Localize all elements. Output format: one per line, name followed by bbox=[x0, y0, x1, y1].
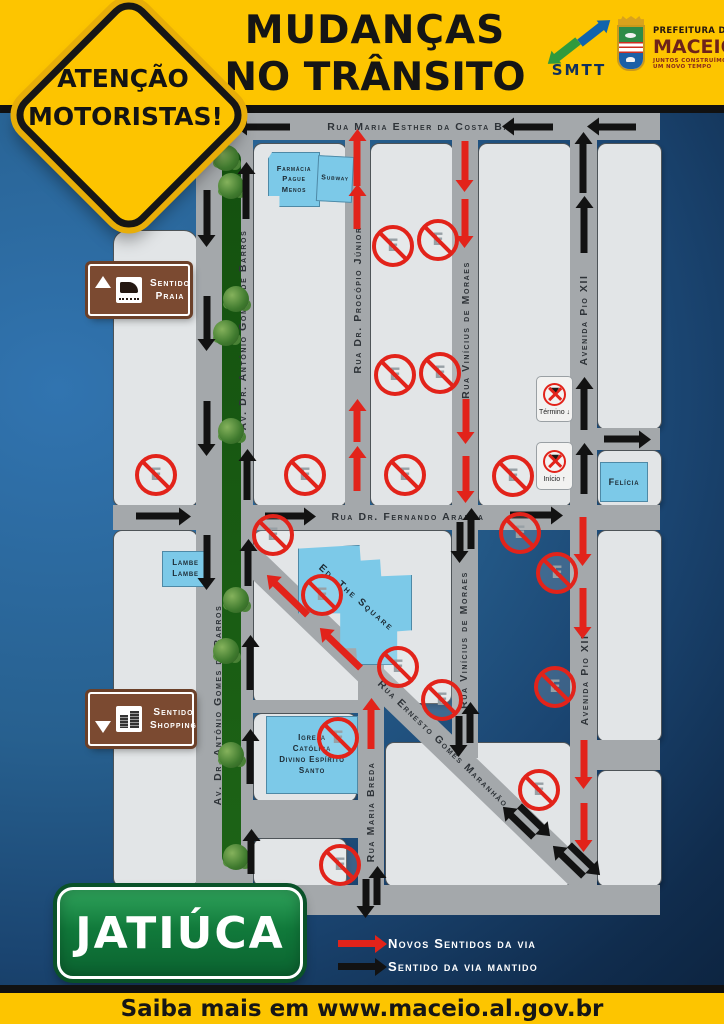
traffic-arrow bbox=[463, 456, 470, 492]
no-stopping-end-sign: Término ↓ bbox=[536, 376, 573, 422]
parking-e-glyph: E bbox=[376, 229, 410, 263]
traffic-arrow bbox=[580, 588, 587, 628]
legend: Novos Sentidos da via Sentido da via man… bbox=[338, 936, 538, 974]
tree-icon bbox=[213, 638, 239, 664]
city-block bbox=[597, 530, 662, 742]
street-label-pio-xii-upper: Avenida Pio XII bbox=[578, 274, 590, 365]
hourglass-icon bbox=[551, 388, 559, 398]
traffic-arrow bbox=[513, 124, 553, 131]
traffic-arrow bbox=[580, 143, 587, 193]
traffic-arrow bbox=[467, 713, 474, 743]
attention-text: ATENÇÃO MOTORISTAS! bbox=[28, 64, 218, 131]
no-parking-sign: E bbox=[417, 219, 459, 261]
no-parking-sign: E bbox=[374, 354, 416, 396]
parking-e-glyph: E bbox=[388, 458, 422, 492]
no-parking-sign: E bbox=[421, 679, 463, 721]
no-parking-sign: E bbox=[319, 844, 361, 886]
sign-text: Sentido Praia bbox=[150, 277, 190, 303]
building-label: Pague bbox=[282, 174, 305, 184]
shopping-buildings-icon bbox=[116, 706, 142, 732]
building-label: Felícia bbox=[609, 476, 640, 488]
traffic-arrow bbox=[604, 436, 640, 443]
street-label-procopio: Rua Dr. Procópio Júnior bbox=[352, 226, 364, 373]
sentido-praia-sign: Sentido Praia bbox=[88, 264, 190, 316]
legend-item-kept-direction: Sentido da via mantido bbox=[338, 959, 538, 974]
street-stub-east bbox=[597, 740, 660, 770]
beach-icon bbox=[116, 277, 142, 303]
tree-icon bbox=[218, 173, 244, 199]
tree-icon bbox=[213, 320, 239, 346]
city-block bbox=[597, 770, 662, 887]
traffic-arrow bbox=[247, 646, 254, 690]
traffic-arrow bbox=[204, 190, 211, 236]
parking-e-glyph: E bbox=[256, 518, 290, 552]
parking-e-glyph: E bbox=[139, 458, 173, 492]
traffic-arrow bbox=[136, 513, 180, 520]
district-name: JATIÚCA bbox=[75, 908, 284, 959]
street-connector bbox=[253, 800, 358, 838]
building-label: Lambe bbox=[172, 569, 199, 580]
traffic-arrow bbox=[598, 124, 636, 131]
tree-icon bbox=[223, 844, 249, 870]
no-stopping-icon bbox=[543, 450, 566, 473]
traffic-arrow bbox=[204, 296, 211, 340]
traffic-arrow bbox=[244, 460, 251, 500]
no-parking-sign: E bbox=[252, 514, 294, 556]
street-label-maria-breda: Rua Maria Breda bbox=[365, 762, 377, 863]
traffic-arrow bbox=[247, 740, 254, 784]
traffic-arrow bbox=[354, 457, 361, 491]
sentido-shopping-sign: Sentido Shopping bbox=[88, 692, 194, 746]
building-label: Santo bbox=[299, 766, 325, 777]
parking-e-glyph: E bbox=[323, 848, 357, 882]
tree-icon bbox=[223, 286, 249, 312]
legend-label: Sentido da via mantido bbox=[388, 959, 538, 974]
traffic-arrow bbox=[363, 879, 370, 907]
tree-icon bbox=[213, 145, 239, 171]
building-label: Farmácia bbox=[277, 164, 312, 174]
building-icon bbox=[120, 715, 128, 728]
sign-text: Sentido Shopping bbox=[150, 706, 197, 732]
sign-line: Shopping bbox=[150, 719, 197, 732]
traffic-arrow bbox=[456, 716, 463, 746]
parking-e-glyph: E bbox=[321, 721, 355, 755]
parking-e-glyph: E bbox=[423, 356, 457, 390]
no-parking-sign: E bbox=[534, 666, 576, 708]
no-parking-sign: E bbox=[518, 769, 560, 811]
traffic-arrow bbox=[581, 388, 588, 430]
parking-e-glyph: E bbox=[503, 516, 537, 550]
sand-icon bbox=[119, 298, 139, 300]
traffic-arrow bbox=[204, 535, 211, 579]
sign-line: Praia bbox=[150, 290, 190, 303]
tree-icon bbox=[218, 742, 244, 768]
no-parking-sign: E bbox=[536, 552, 578, 594]
district-sign: JATIÚCA bbox=[57, 887, 303, 979]
traffic-arrow bbox=[462, 141, 469, 181]
parking-e-glyph: E bbox=[425, 683, 459, 717]
traffic-arrow bbox=[246, 124, 290, 131]
footer-bar: Saiba mais em www.maceio.al.gov.br bbox=[0, 993, 724, 1024]
no-stopping-icon bbox=[543, 383, 566, 406]
parking-e-glyph: E bbox=[381, 650, 415, 684]
attention-line2: MOTORISTAS! bbox=[28, 102, 218, 131]
red-arrow-icon bbox=[338, 940, 376, 947]
no-parking-sign: E bbox=[492, 455, 534, 497]
sign-line: Sentido bbox=[150, 706, 197, 719]
traffic-arrow bbox=[580, 517, 587, 555]
no-parking-sign: E bbox=[317, 717, 359, 759]
legend-label: Novos Sentidos da via bbox=[388, 936, 536, 951]
footer-text: Saiba mais em www.maceio.al.gov.br bbox=[121, 996, 604, 1022]
traffic-arrow bbox=[374, 877, 381, 905]
building-label: Subway bbox=[321, 174, 349, 185]
building-icon bbox=[130, 711, 139, 728]
no-parking-sign: E bbox=[284, 454, 326, 496]
traffic-arrow bbox=[243, 173, 250, 219]
sign-label: Término ↓ bbox=[539, 409, 570, 416]
parking-e-glyph: E bbox=[522, 773, 556, 807]
traffic-arrow bbox=[354, 410, 361, 442]
hourglass-icon bbox=[551, 455, 559, 465]
traffic-arrow bbox=[457, 522, 464, 552]
street-label-gomes-barros-lower: Av. Dr. Antônio Gomes de Barros bbox=[212, 605, 224, 806]
traffic-arrow bbox=[354, 195, 361, 229]
no-parking-sign: E bbox=[419, 352, 461, 394]
city-block bbox=[370, 143, 454, 507]
tree-icon bbox=[218, 418, 244, 444]
traffic-arrow bbox=[581, 454, 588, 494]
parking-e-glyph: E bbox=[540, 556, 574, 590]
wave-icon bbox=[120, 282, 138, 293]
traffic-arrow bbox=[581, 207, 588, 253]
traffic-arrow bbox=[245, 550, 252, 586]
parking-e-glyph: E bbox=[378, 358, 412, 392]
attention-line1: ATENÇÃO bbox=[28, 64, 218, 93]
parking-e-glyph: E bbox=[288, 458, 322, 492]
sign-line: Sentido bbox=[150, 277, 190, 290]
traffic-arrow bbox=[468, 519, 475, 549]
no-parking-sign: E bbox=[377, 646, 419, 688]
building-label: Lambe bbox=[172, 558, 199, 569]
divider-bottom bbox=[0, 985, 724, 993]
parking-e-glyph: E bbox=[538, 670, 572, 704]
parking-e-glyph: E bbox=[305, 578, 339, 612]
sign-label: Início ↑ bbox=[543, 476, 565, 483]
street-label-vinicius-upper: Rua Vinícius de Moraes bbox=[460, 261, 472, 399]
traffic-arrow bbox=[463, 399, 470, 433]
traffic-arrow bbox=[462, 199, 469, 237]
no-parking-sign: E bbox=[372, 225, 414, 267]
building-label: Menos bbox=[282, 185, 306, 195]
building-felicia: Felícia bbox=[600, 462, 648, 502]
parking-e-glyph: E bbox=[421, 223, 455, 257]
tree-icon bbox=[223, 587, 249, 613]
legend-item-new-direction: Novos Sentidos da via bbox=[338, 936, 538, 951]
traffic-arrow bbox=[204, 401, 211, 445]
no-parking-sign: E bbox=[384, 454, 426, 496]
poster: MUDANÇAS NO TRÂNSITO SMTT PREFEITURA DE … bbox=[0, 0, 724, 1024]
traffic-arrow bbox=[368, 709, 375, 749]
traffic-arrow bbox=[354, 140, 361, 186]
no-parking-sign: E bbox=[135, 454, 177, 496]
parking-e-glyph: E bbox=[496, 459, 530, 493]
no-parking-sign: E bbox=[499, 512, 541, 554]
traffic-arrow bbox=[581, 740, 588, 778]
street-label-pio-xii-lower: Avenida Pio XII bbox=[579, 634, 591, 725]
no-parking-sign: E bbox=[301, 574, 343, 616]
no-stopping-start-sign: Início ↑ bbox=[536, 442, 573, 490]
black-arrow-icon bbox=[338, 963, 376, 970]
city-block bbox=[597, 143, 662, 430]
traffic-arrow bbox=[581, 803, 588, 841]
traffic-arrow bbox=[248, 840, 255, 874]
